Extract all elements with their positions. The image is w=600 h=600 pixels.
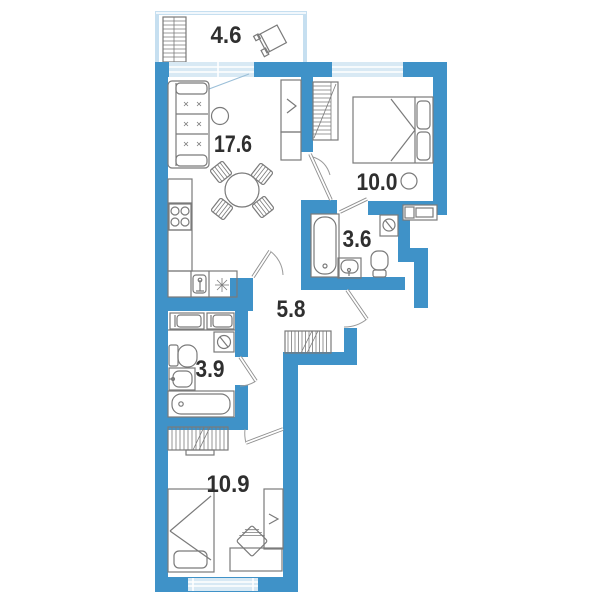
bathtub-icon bbox=[168, 391, 234, 417]
dining-chair-icon bbox=[251, 163, 273, 185]
wall-bath2-right-upper bbox=[235, 311, 248, 357]
room-balcony: 4.6 bbox=[155, 11, 307, 62]
entrance-door-swing bbox=[344, 290, 367, 327]
wall-bedroom2-right bbox=[283, 365, 298, 592]
hall-wardrobe-icon bbox=[285, 331, 331, 353]
bedroom1-door-swing bbox=[310, 154, 331, 200]
room-bedroom-1: 10.0 bbox=[310, 82, 437, 220]
area-label-living: 17.6 bbox=[214, 131, 252, 158]
washbasin-icon bbox=[169, 368, 195, 390]
dining-set-icon bbox=[210, 161, 274, 220]
balcony-chair-icon bbox=[254, 24, 288, 57]
area-label-bedroom1: 10.0 bbox=[357, 169, 398, 196]
shelf-cabinet-icon bbox=[207, 313, 234, 329]
bathroom2-door-swing bbox=[240, 357, 256, 386]
wall-kitchen-corner bbox=[230, 278, 253, 297]
bathtub-icon bbox=[311, 214, 339, 277]
washbasin-icon bbox=[338, 258, 361, 278]
wall-bath1-top bbox=[301, 200, 337, 214]
washing-machine-icon bbox=[380, 215, 398, 236]
wall-kitchen-bottom bbox=[155, 297, 253, 311]
desk-icon bbox=[230, 548, 282, 571]
wardrobe-icon bbox=[281, 80, 301, 160]
balcony-wall-left bbox=[155, 11, 159, 62]
hob-icon bbox=[215, 278, 229, 292]
sofa-icon bbox=[168, 81, 209, 168]
floor-plan-page: 4.6 bbox=[0, 0, 600, 600]
washing-machine-icon bbox=[214, 332, 234, 352]
kitchen-sink-icon bbox=[193, 275, 206, 293]
area-label-bathroom2: 3.9 bbox=[196, 356, 225, 383]
window-living bbox=[169, 62, 254, 77]
wall-bath1-left bbox=[301, 214, 311, 277]
wardrobe-hatched-icon bbox=[168, 427, 228, 455]
stove-icon bbox=[169, 204, 191, 230]
wall-entrance-stub bbox=[344, 328, 357, 365]
wardrobe-hatched-icon bbox=[313, 82, 338, 140]
room-living-kitchen: 17.6 bbox=[168, 74, 301, 297]
area-label-balcony: 4.6 bbox=[211, 22, 242, 49]
wall-bath1-bottom bbox=[301, 277, 405, 290]
wall-step-right bbox=[398, 248, 428, 262]
area-label-bedroom2: 10.9 bbox=[207, 471, 250, 498]
floor-plan: 4.6 bbox=[0, 0, 600, 600]
wall-right-outer bbox=[433, 62, 447, 215]
wall-bath2-bottom bbox=[155, 417, 248, 430]
toilet-icon bbox=[169, 345, 197, 367]
dining-chair-icon bbox=[252, 196, 274, 218]
window-bedroom2 bbox=[188, 578, 258, 591]
area-label-bathroom1: 3.6 bbox=[343, 226, 372, 253]
wall-hall-south bbox=[283, 352, 344, 365]
single-bed-icon bbox=[168, 489, 214, 572]
double-bed-icon bbox=[353, 97, 433, 163]
toilet-icon bbox=[371, 251, 388, 277]
bathroom1-door-swing bbox=[340, 199, 367, 212]
shelf-cabinet-icon bbox=[170, 313, 204, 329]
area-label-hallway: 5.8 bbox=[277, 296, 306, 323]
living-door-swing bbox=[253, 251, 283, 277]
room-bedroom-2: 10.9 bbox=[168, 427, 283, 572]
wall-bath2-right-lower bbox=[235, 385, 248, 417]
balcony-wall-right bbox=[303, 11, 307, 62]
balcony-drying-rack-icon bbox=[163, 17, 186, 62]
wall-divider-living-bedroom1 bbox=[301, 62, 313, 152]
stool-icon bbox=[401, 173, 417, 189]
bedroom2-door-swing bbox=[245, 429, 283, 443]
wall-outer-vestibule bbox=[414, 262, 428, 308]
window-bedroom1 bbox=[332, 62, 403, 77]
wall-left-outer bbox=[155, 62, 168, 592]
dresser-icon bbox=[403, 205, 437, 220]
coffee-table-icon bbox=[212, 108, 229, 125]
